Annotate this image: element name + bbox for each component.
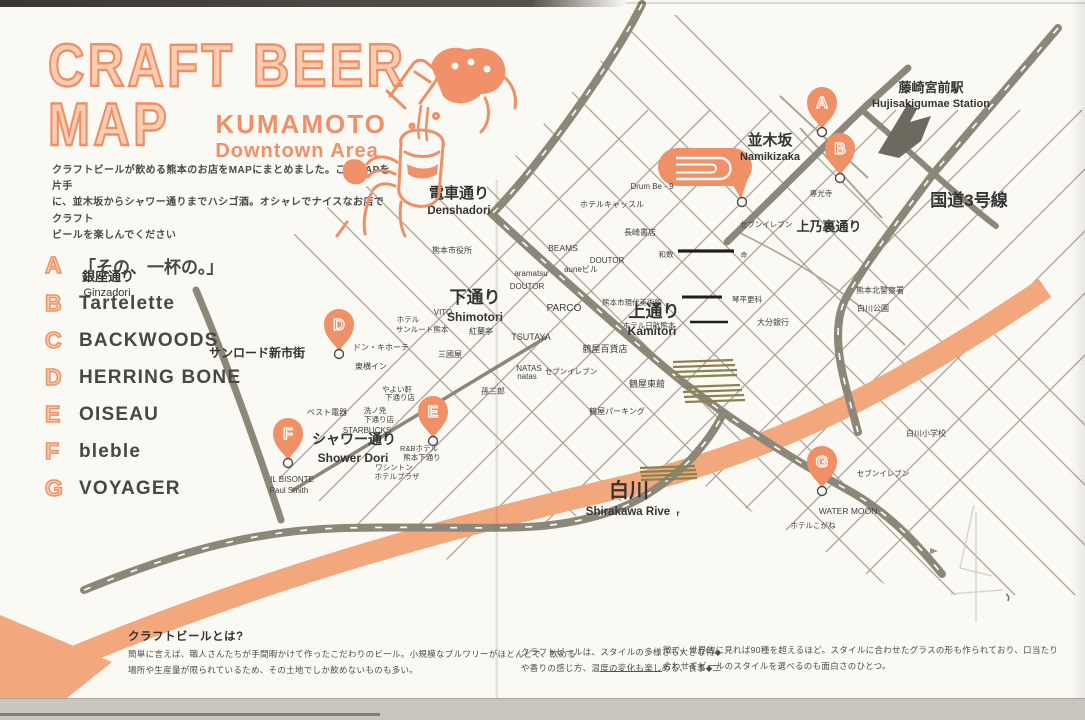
svg-text:紅蘭亭: 紅蘭亭	[469, 326, 493, 336]
pin-g: G	[807, 446, 837, 496]
legend-letter-g: G	[45, 475, 79, 502]
svg-text:大分銀行: 大分銀行	[757, 317, 789, 327]
svg-text:DOUTOR: DOUTOR	[510, 282, 545, 291]
svg-text:孫三郎: 孫三郎	[481, 386, 505, 396]
svg-text:BEAMS: BEAMS	[548, 243, 578, 253]
svg-text:B: B	[834, 141, 846, 158]
svg-text:セブンイレブン: セブンイレブン	[857, 468, 910, 478]
svg-text:E: E	[428, 404, 439, 421]
svg-text:DOUTOR: DOUTOR	[590, 256, 625, 265]
legend-item-e: E OISEAU	[45, 401, 159, 428]
svg-text:Paul Smith: Paul Smith	[270, 486, 309, 495]
svg-text:R&Bホテル: R&Bホテル	[400, 444, 438, 453]
svg-text:ワシントン: ワシントン	[375, 463, 413, 472]
street-label-namikizaka-en: Namikizaka	[740, 151, 801, 163]
svg-text:ホテル: ホテル	[397, 315, 420, 324]
svg-text:G: G	[816, 454, 828, 471]
craft-beer-map-page: A B D E	[0, 0, 1085, 720]
legend-item-a: A 「その、一杯の。」	[45, 252, 224, 279]
legend-letter-f: F	[45, 438, 79, 465]
pin-d: D	[324, 309, 354, 359]
svg-text:白川公園: 白川公園	[857, 303, 889, 313]
footer-right-text: 徴で、世界的に見れば90種を超えるほど。スタイルに合わせたグラスの形も作られてお…	[663, 642, 1058, 674]
legend-name-c: BACKWOODS	[79, 330, 219, 352]
svg-text:熊本北警察署: 熊本北警察署	[856, 285, 904, 295]
page-title-line2: MAP	[48, 97, 170, 152]
svg-text:TSUTAYA: TSUTAYA	[511, 332, 551, 342]
footer-heading: クラフトビールとは?	[128, 628, 244, 644]
svg-text:IL BISONTE: IL BISONTE	[270, 475, 314, 484]
street-label-namikizaka-jp: 並木坂	[747, 131, 793, 149]
pour-hand	[431, 48, 505, 104]
svg-text:ドン・キホーテ: ドン・キホーテ	[353, 343, 409, 352]
legend-name-e: OISEAU	[79, 404, 159, 426]
svg-text:鶴屋百貨店: 鶴屋百貨店	[582, 343, 627, 354]
street-label-station-jp: 藤崎宮前駅	[898, 80, 964, 95]
page-title-line1: CRAFT BEER	[48, 38, 334, 93]
street-label-station-en: Hujisakigumae Station	[872, 98, 990, 110]
legend-name-b: Tartelette	[79, 293, 175, 315]
svg-text:D: D	[333, 317, 345, 334]
svg-text:熊本下通り: 熊本下通り	[403, 452, 441, 462]
legend-item-b: B Tartelette	[45, 290, 175, 317]
street-label-shirakawa-jp: 白川	[609, 478, 649, 502]
svg-text:サンルート熊本: サンルート熊本	[396, 324, 449, 334]
svg-text:ホテルこがね: ホテルこがね	[791, 520, 836, 530]
legend-name-d: HERRING BONE	[79, 367, 241, 389]
svg-text:aramatsu: aramatsu	[514, 269, 547, 278]
svg-text:専光寺: 専光寺	[810, 188, 833, 198]
beer-stream	[418, 106, 421, 138]
beer-pour-illustration	[335, 36, 525, 246]
legend-letter-a: A	[45, 252, 79, 279]
holding-hand	[367, 157, 397, 164]
svg-text:Drum Be - 9: Drum Be - 9	[630, 182, 674, 191]
street-label-route3: 国道3号線	[930, 190, 1007, 210]
svg-text:ベスト電器: ベスト電器	[307, 408, 347, 417]
svg-text:熊本市役所: 熊本市役所	[432, 245, 472, 255]
svg-text:PARCO: PARCO	[547, 303, 582, 314]
svg-text:東横イン: 東横イン	[355, 361, 387, 371]
svg-text:A: A	[816, 95, 828, 112]
svg-text:下通り店: 下通り店	[385, 392, 415, 402]
svg-text:ホテル日航熊本: ホテル日航熊本	[623, 320, 676, 330]
street-label-shirakawa-en2: r	[676, 509, 679, 518]
svg-text:洗ノ兇: 洗ノ兇	[364, 405, 387, 415]
legend-letter-e: E	[45, 401, 79, 428]
legend-item-f: F bleble	[45, 438, 141, 465]
pin-b: B	[825, 133, 855, 183]
svg-text:鶴屋パーキング: 鶴屋パーキング	[589, 406, 645, 416]
svg-text:ホテルプラザ: ホテルプラザ	[375, 472, 420, 481]
svg-text:ホテルキャッスル: ホテルキャッスル	[580, 200, 644, 209]
svg-text:VITO: VITO	[434, 308, 453, 317]
legend-letter-d: D	[45, 364, 79, 391]
svg-text:鶴屋東館: 鶴屋東館	[629, 378, 665, 389]
svg-text:長崎書店: 長崎書店	[624, 227, 656, 237]
road-ginza-shower	[196, 290, 281, 520]
pin-a: A	[807, 87, 837, 137]
legend-name-g: VOYAGER	[79, 478, 181, 500]
street-label-kaminoura: 上乃裏通り	[796, 219, 861, 234]
legend-item-c: C BACKWOODS	[45, 327, 219, 354]
svg-text:和数: 和数	[659, 249, 674, 259]
street-label-shimotori-en: Shimotori	[447, 310, 503, 324]
svg-text:WATER MOON: WATER MOON	[819, 506, 878, 516]
legend-letter-b: B	[45, 290, 79, 317]
footer-left-text: 簡単に言えば、職人さんたちが手間暇かけて作ったこだわりのビール。小規模なブルワリ…	[128, 646, 576, 678]
legend-letter-c: C	[45, 327, 79, 354]
street-label-sunroad: サンロード新市街	[209, 345, 305, 360]
legend-item-d: D HERRING BONE	[45, 364, 241, 391]
svg-text:熊本市現代美術館: 熊本市現代美術館	[602, 297, 662, 307]
legend-name-f: bleble	[79, 441, 141, 463]
svg-text:F: F	[283, 426, 293, 443]
svg-text:auneビル: auneビル	[564, 265, 598, 274]
svg-text:セブンイレブン: セブンイレブン	[740, 219, 793, 229]
legend-item-g: G VOYAGER	[45, 475, 181, 502]
street-label-shimotori-jp: 下通り	[450, 288, 501, 307]
svg-text:白川小学校: 白川小学校	[906, 428, 946, 438]
legend-name-a: 「その、一杯の。」	[79, 253, 224, 278]
svg-text:命: 命	[741, 250, 748, 259]
svg-text:natas: natas	[517, 372, 537, 381]
svg-text:三國屋: 三國屋	[438, 350, 462, 359]
svg-text:下通り店: 下通り店	[364, 414, 394, 424]
svg-text:STARBUCKS: STARBUCKS	[343, 426, 391, 435]
svg-text:琴平更科: 琴平更科	[732, 294, 762, 304]
street-label-shirakawa-en: Shirakawa Rive	[586, 506, 670, 518]
svg-text:セブンイレブン: セブンイレブン	[545, 366, 598, 376]
